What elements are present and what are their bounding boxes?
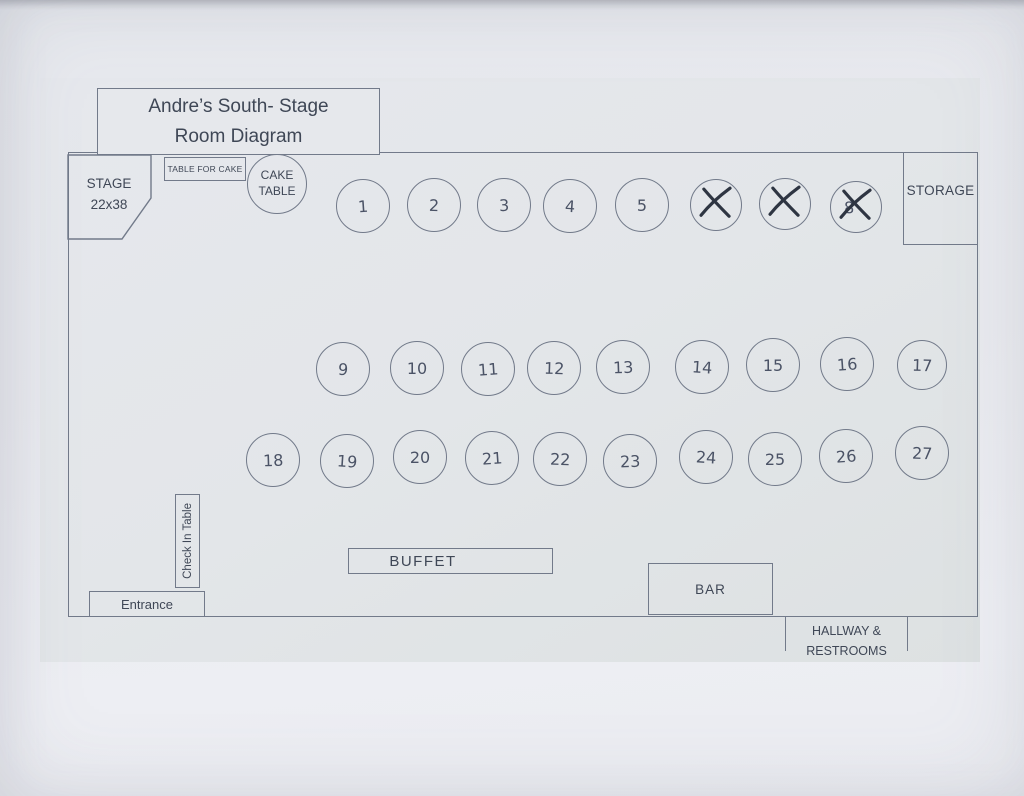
table-number: 14 xyxy=(691,357,713,377)
cake-table-label-line-2: TABLE xyxy=(258,184,295,200)
table-17: 17 xyxy=(897,340,947,390)
cross-out-mark xyxy=(828,179,884,235)
table-number: 10 xyxy=(407,359,427,378)
table-number: 19 xyxy=(336,451,358,471)
stage-name: STAGE xyxy=(72,174,146,195)
table-18: 18 xyxy=(246,433,300,487)
table-number: 24 xyxy=(695,447,717,467)
table-22: 22 xyxy=(533,432,587,486)
table-12: 12 xyxy=(527,341,581,395)
table-number: 22 xyxy=(549,449,570,469)
table-25: 25 xyxy=(748,432,802,486)
table-number: 20 xyxy=(410,448,430,467)
table-number: 1 xyxy=(357,196,368,216)
table-24: 24 xyxy=(679,430,733,484)
storage-label: STORAGE xyxy=(907,183,975,198)
table-2: 2 xyxy=(407,178,461,232)
table-number: 26 xyxy=(835,446,857,466)
table-number: 11 xyxy=(477,359,499,379)
cross-out-mark xyxy=(688,177,744,233)
stage-label: STAGE 22x38 xyxy=(72,174,146,216)
table-4: 4 xyxy=(543,179,597,233)
table-23: 23 xyxy=(603,434,657,488)
table-number: 2 xyxy=(429,195,440,214)
hallway-restrooms-opening: HALLWAY & RESTROOMS xyxy=(785,617,908,651)
table-number: 12 xyxy=(543,358,564,378)
table-14: 14 xyxy=(675,340,729,394)
table-15: 15 xyxy=(746,338,800,392)
table-number: 15 xyxy=(763,356,783,375)
title-box: Andre’s South- Stage Room Diagram xyxy=(97,88,380,155)
table-number: 25 xyxy=(765,450,785,469)
cake-table-label-line-1: CAKE xyxy=(261,168,294,184)
table-27: 27 xyxy=(895,426,949,480)
table-21: 21 xyxy=(465,431,519,485)
table-3: 3 xyxy=(477,178,531,232)
buffet-label: BUFFET xyxy=(389,553,456,570)
cake-table-circle: CAKE TABLE xyxy=(247,154,307,214)
storage-box: STORAGE xyxy=(903,152,978,245)
table-number: 3 xyxy=(499,195,510,214)
entrance-label: Entrance xyxy=(121,597,173,612)
table-19: 19 xyxy=(320,434,374,488)
table-number: 13 xyxy=(612,357,633,377)
photographed-room-diagram: Andre’s South- Stage Room Diagram STAGE … xyxy=(0,0,1024,796)
table-for-cake-box: TABLE FOR CAKE xyxy=(164,157,246,181)
table-number: 23 xyxy=(619,451,640,471)
table-number: 5 xyxy=(637,196,647,215)
hallway-label-line-1: HALLWAY & xyxy=(786,621,907,641)
table-number: 4 xyxy=(564,196,575,216)
table-16: 16 xyxy=(820,337,874,391)
table-6 xyxy=(690,179,742,231)
table-13: 13 xyxy=(596,340,650,394)
buffet-box: BUFFET xyxy=(348,548,553,574)
table-number: 9 xyxy=(337,359,348,379)
table-number: 18 xyxy=(262,450,283,470)
table-number: 17 xyxy=(911,355,932,375)
table-7 xyxy=(759,178,811,230)
table-10: 10 xyxy=(390,341,444,395)
stage-dimensions: 22x38 xyxy=(72,195,146,216)
table-number: 16 xyxy=(836,354,858,374)
table-26: 26 xyxy=(819,429,873,483)
table-9: 9 xyxy=(316,342,370,396)
cross-out-mark xyxy=(757,176,813,232)
table-for-cake-label: TABLE FOR CAKE xyxy=(168,164,243,174)
table-number: 21 xyxy=(481,448,503,468)
bar-label: BAR xyxy=(695,582,726,597)
check-in-table-box: Check In Table xyxy=(175,494,200,588)
table-20: 20 xyxy=(393,430,447,484)
table-11: 11 xyxy=(461,342,515,396)
title-line-1: Andre’s South- Stage xyxy=(98,92,379,121)
check-in-table-label: Check In Table xyxy=(182,503,194,579)
hallway-label-line-2: RESTROOMS xyxy=(786,641,907,661)
table-number: 27 xyxy=(911,443,932,463)
title-line-2: Room Diagram xyxy=(98,122,379,151)
table-8: 8 xyxy=(830,181,882,233)
table-1: 1 xyxy=(336,179,390,233)
table-5: 5 xyxy=(615,178,669,232)
entrance-box: Entrance xyxy=(89,591,205,617)
bar-box: BAR xyxy=(648,563,773,615)
